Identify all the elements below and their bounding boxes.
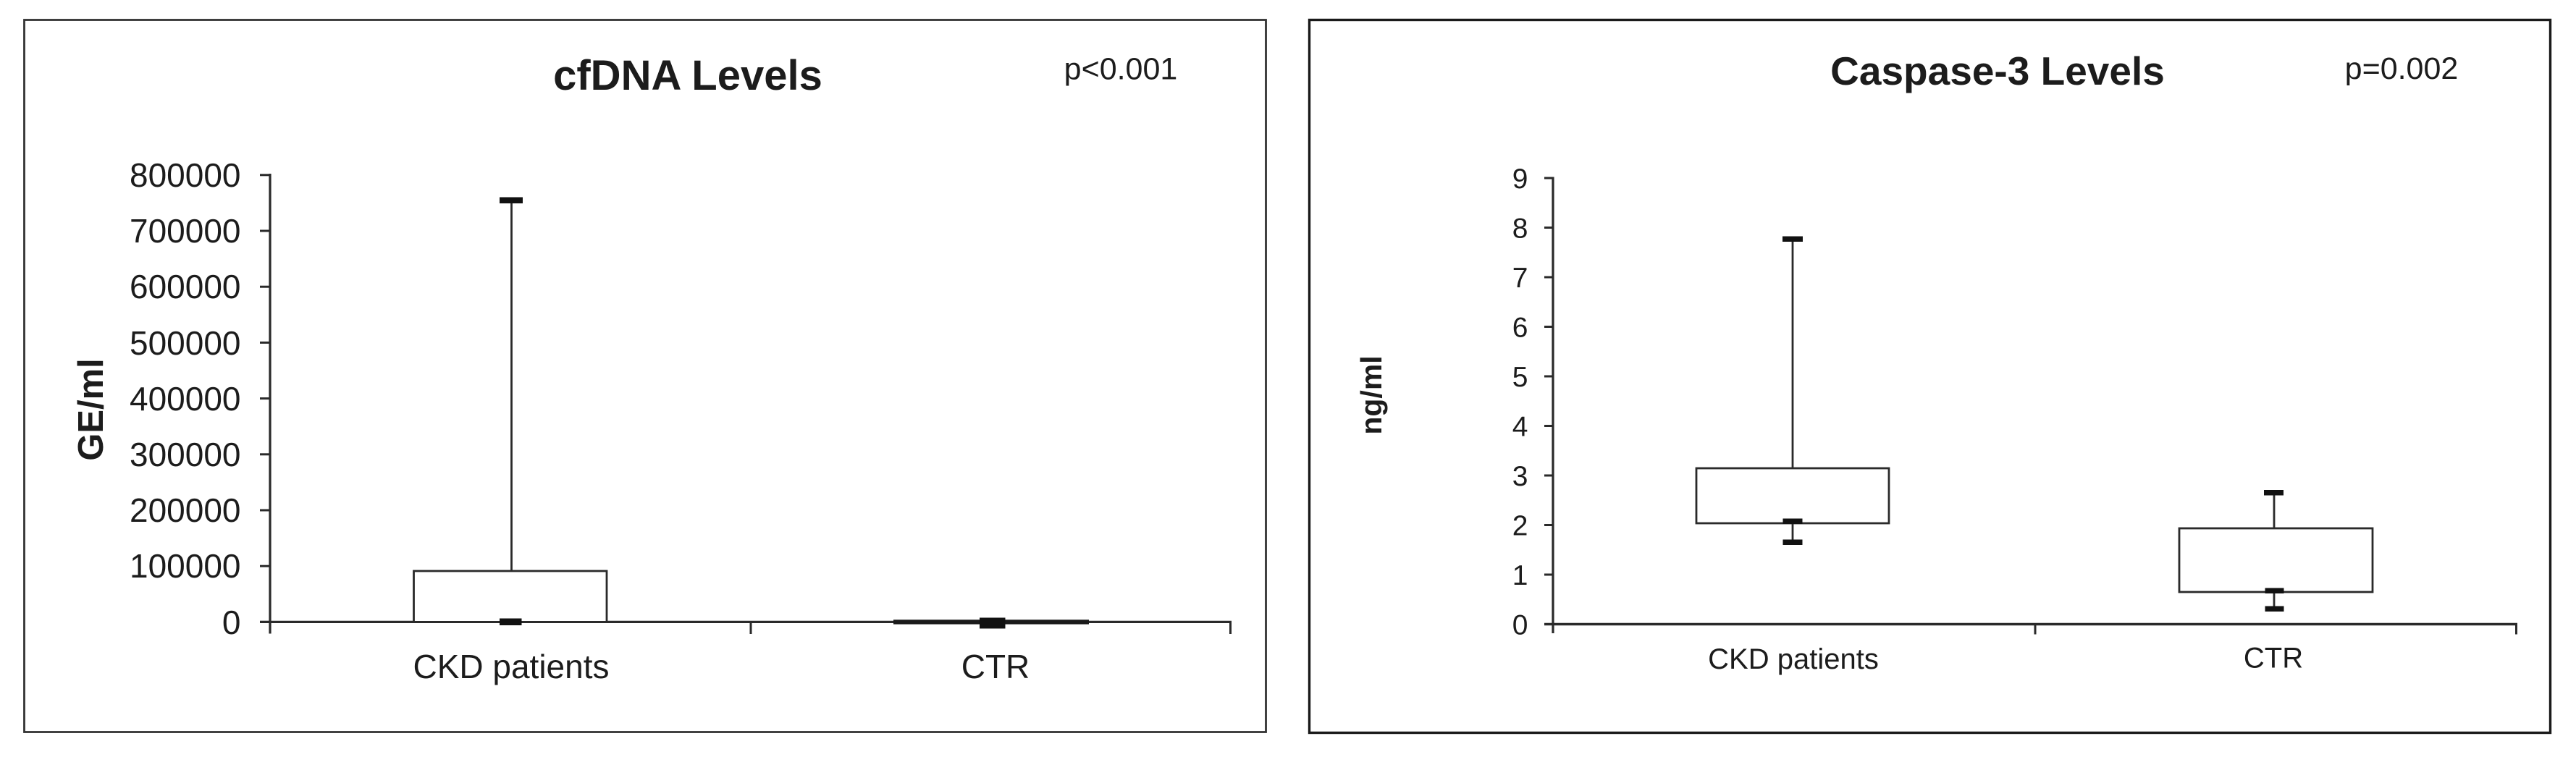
svg-text:800000: 800000 xyxy=(130,156,241,194)
svg-text:4: 4 xyxy=(1512,412,1528,443)
svg-text:500000: 500000 xyxy=(130,324,241,362)
svg-text:600000: 600000 xyxy=(130,268,241,305)
svg-text:CKD patients: CKD patients xyxy=(1708,643,1879,675)
svg-text:2: 2 xyxy=(1512,511,1528,542)
svg-text:0: 0 xyxy=(222,604,241,641)
svg-text:ng/ml: ng/ml xyxy=(1355,355,1388,434)
svg-text:1: 1 xyxy=(1512,560,1528,591)
svg-text:p<0.001: p<0.001 xyxy=(1064,52,1178,87)
svg-text:cfDNA Levels: cfDNA Levels xyxy=(553,52,822,99)
svg-text:3: 3 xyxy=(1512,461,1528,492)
svg-text:300000: 300000 xyxy=(130,436,241,473)
svg-text:5: 5 xyxy=(1512,362,1528,393)
svg-text:7: 7 xyxy=(1512,263,1528,294)
svg-text:CKD patients: CKD patients xyxy=(413,648,609,685)
svg-text:CTR: CTR xyxy=(961,648,1030,685)
svg-text:p=0.002: p=0.002 xyxy=(2345,51,2459,86)
svg-text:CTR: CTR xyxy=(2244,643,2303,674)
svg-text:Caspase-3 Levels: Caspase-3 Levels xyxy=(1830,48,2165,93)
svg-text:400000: 400000 xyxy=(130,380,241,418)
svg-text:8: 8 xyxy=(1512,213,1528,245)
svg-text:200000: 200000 xyxy=(130,491,241,529)
svg-text:0: 0 xyxy=(1512,610,1528,641)
svg-text:100000: 100000 xyxy=(130,547,241,585)
svg-text:9: 9 xyxy=(1512,164,1528,195)
svg-text:GE/ml: GE/ml xyxy=(72,358,111,461)
svg-text:700000: 700000 xyxy=(130,212,241,250)
svg-text:6: 6 xyxy=(1512,313,1528,344)
